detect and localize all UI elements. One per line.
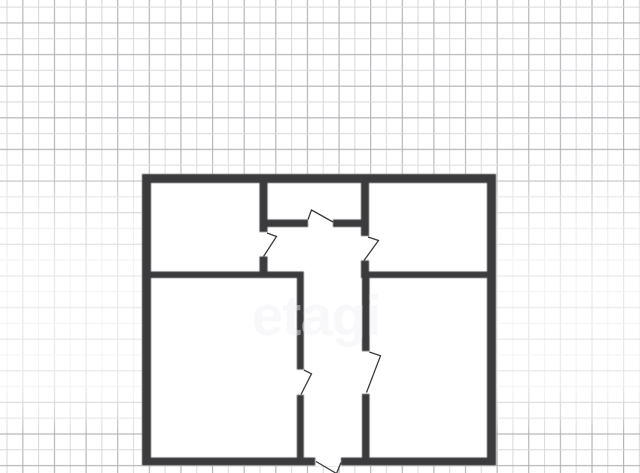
svg-text:etagi: etagi xyxy=(251,284,380,348)
